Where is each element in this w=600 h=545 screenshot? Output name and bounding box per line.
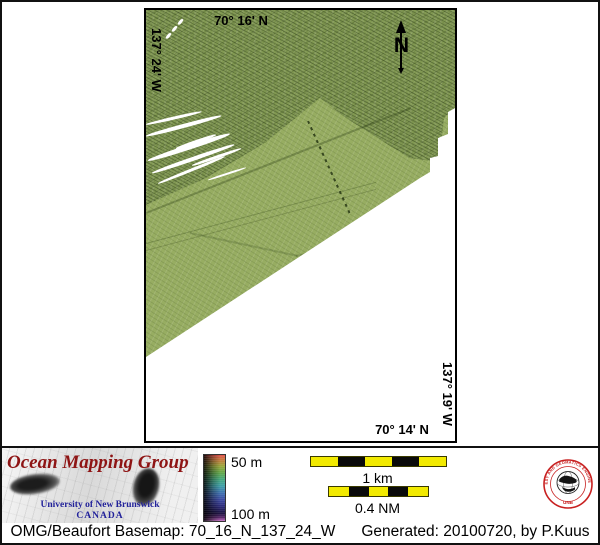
scalebar-segment bbox=[419, 457, 446, 466]
footer-basemap-id: OMG/Beaufort Basemap: 70_16_N_137_24_W bbox=[11, 523, 336, 540]
north-arrow-tail bbox=[398, 68, 404, 74]
colorbar-bottom-label: 100 m bbox=[231, 506, 270, 522]
colorbar-top-label: 50 m bbox=[231, 454, 262, 470]
map-frame: 70° 16' N 137° 24' W 137° 19' W 70° 14' … bbox=[144, 8, 457, 443]
logo-country: CANADA bbox=[2, 511, 198, 521]
seafloor-lineation bbox=[296, 242, 360, 257]
seafloor-lineation bbox=[190, 232, 298, 256]
logo-subtitle: University of New Brunswick bbox=[2, 500, 198, 510]
scalebar-nm-label: 0.4 NM bbox=[328, 500, 427, 516]
scalebar-segment bbox=[311, 457, 338, 466]
label-bottom-latitude: 70° 14' N bbox=[363, 422, 441, 437]
scalebar-segment bbox=[365, 457, 392, 466]
scalebar-segment bbox=[369, 487, 389, 496]
label-left-longitude: 137° 24' W bbox=[149, 28, 164, 92]
depth-colorbar bbox=[203, 454, 226, 522]
logo-title: Ocean Mapping Group bbox=[7, 452, 195, 474]
rough-texture-zone bbox=[146, 10, 455, 441]
scalebar-km bbox=[310, 456, 447, 467]
label-right-longitude: 137° 19' W bbox=[440, 362, 455, 426]
scalebar-segment bbox=[329, 487, 349, 496]
scalebar-segment bbox=[349, 487, 369, 496]
footer-generated: Generated: 20100720, by P.Kuus bbox=[361, 523, 589, 540]
north-arrow-label: N bbox=[388, 35, 415, 57]
bathymetry-swath bbox=[146, 10, 455, 441]
label-top-latitude: 70° 16' N bbox=[198, 13, 284, 28]
scalebar-segment bbox=[338, 457, 365, 466]
seal-unb-text: UNB bbox=[563, 500, 574, 505]
seafloor-lineation bbox=[146, 182, 376, 244]
scalebar-km-label: 1 km bbox=[310, 470, 445, 486]
scalebar-segment bbox=[408, 487, 428, 496]
unb-geodesy-seal: GEODESY AND GEOMATICS ENGINEERING UNB bbox=[542, 458, 594, 510]
scalebar-nm bbox=[328, 486, 429, 497]
omg-logo: Ocean Mapping Group University of New Br… bbox=[2, 448, 198, 523]
scalebar-segment bbox=[392, 457, 419, 466]
map-sheet: 70° 16' N 137° 24' W 137° 19' W 70° 14' … bbox=[0, 0, 600, 545]
scalebar-segment bbox=[388, 487, 408, 496]
footer-caption: OMG/Beaufort Basemap: 70_16_N_137_24_WGe… bbox=[2, 523, 598, 541]
